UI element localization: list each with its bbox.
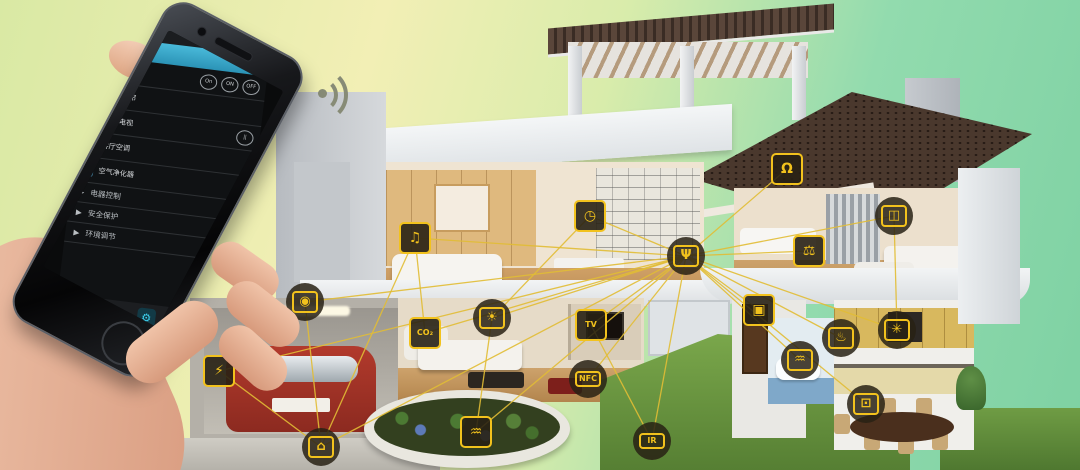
gas-stove-icon-glyph: ♨ xyxy=(828,327,854,349)
row-buttons: OnONOFF xyxy=(199,73,261,96)
weight-scale-icon: ⚖ xyxy=(793,235,825,267)
energy-meter-icon-glyph: ◷ xyxy=(584,209,596,223)
alarm-bell-icon: Ω xyxy=(771,153,803,185)
light-bulb-icon: ☀ xyxy=(473,299,511,337)
device-label: 客厅电视 xyxy=(104,115,134,129)
section-label: 电器控制 xyxy=(90,187,122,202)
purifier-icon: ♒ xyxy=(78,161,94,177)
shower-sprinkler-icon: ♒ xyxy=(781,341,819,379)
light-bulb-icon-glyph: ☀ xyxy=(479,307,505,329)
shower-sprinkler-icon-glyph: ♒ xyxy=(787,349,813,371)
caret-right-icon: ▶ xyxy=(78,187,85,197)
device-button[interactable]: On xyxy=(199,73,218,90)
tv-icon: ▭ xyxy=(85,111,101,127)
section-label: 安全保护 xyxy=(87,208,119,223)
curtain-icon-glyph: ◫ xyxy=(881,205,907,227)
curtain-icon: ◫ xyxy=(88,85,104,101)
section-label: 环境调节 xyxy=(85,228,117,243)
phone-device-list: ☀客厅照明OnONOFF◫客厅窗帘▭客厅电视||❄客厅空调♒空气净化器 xyxy=(72,54,268,203)
sprinkler-icon: ♒ xyxy=(460,416,492,448)
oven-icon: ⊡ xyxy=(847,385,885,423)
caret-right-icon: ▶ xyxy=(75,207,82,217)
row-buttons: || xyxy=(235,129,254,146)
device-button[interactable]: ON xyxy=(220,76,239,93)
ventilation-fan-icon-glyph: ✳ xyxy=(884,319,910,341)
motion-sensor-icon-glyph: IR xyxy=(639,433,665,449)
alarm-bell-icon-glyph: Ω xyxy=(781,162,793,176)
oven-icon-glyph: ⊡ xyxy=(853,393,879,415)
hand-with-phone: ‹ 任务 ▼ 照明管理 ☀客厅照明OnONOFF◫客厅窗帘▭客厅电视||❄客厅空… xyxy=(0,0,420,470)
bulb-icon: ☀ xyxy=(91,60,107,76)
ac-icon: ❄ xyxy=(81,136,97,152)
gas-stove-icon: ♨ xyxy=(822,319,860,357)
device-button[interactable]: || xyxy=(235,129,254,146)
front-camera xyxy=(195,25,209,39)
group-label: 照明管理 xyxy=(106,41,140,56)
ventilation-fan-icon: ✳ xyxy=(878,311,916,349)
window-sensor-icon: ▣ xyxy=(743,294,775,326)
smartphone: ‹ 任务 ▼ 照明管理 ☀客厅照明OnONOFF◫客厅窗帘▭客厅电视||❄客厅空… xyxy=(0,0,362,440)
tv-icon-glyph: TV xyxy=(585,321,597,329)
tv-icon: TV xyxy=(575,309,607,341)
motion-sensor-icon: IR xyxy=(633,422,671,460)
app-title: 任务 xyxy=(126,30,144,37)
caret-down-icon: ▼ xyxy=(96,41,103,51)
device-button[interactable]: OFF xyxy=(242,78,261,95)
caret-right-icon: ▶ xyxy=(73,227,80,237)
smart-home-scene: ◉⚡⌂CO₂☀♒TVNFCIR♫◷ΨΩ◫⚖▣♨♒✳⊡ ‹ 任务 ▼ 照明管理 xyxy=(0,0,1080,470)
device-label: 空气净化器 xyxy=(98,166,135,180)
nfc-icon: NFC xyxy=(569,360,607,398)
device-label: 客厅照明 xyxy=(110,65,140,79)
weight-scale-icon-glyph: ⚖ xyxy=(803,244,816,258)
router-hub-icon-glyph: Ψ xyxy=(673,245,699,267)
sprinkler-icon-glyph: ♒ xyxy=(470,425,483,439)
tab-scenes[interactable]: ▦ xyxy=(64,298,84,318)
nfc-icon-glyph: NFC xyxy=(575,371,601,387)
energy-meter-icon: ◷ xyxy=(574,200,606,232)
curtain-icon: ◫ xyxy=(875,197,913,235)
device-label: 客厅窗帘 xyxy=(107,90,137,104)
back-button[interactable]: ‹ xyxy=(96,30,101,32)
window-sensor-icon-glyph: ▣ xyxy=(752,303,765,317)
router-hub-icon: Ψ xyxy=(667,237,705,275)
tab-devices[interactable]: ▧ xyxy=(100,303,120,323)
device-label: 客厅空调 xyxy=(101,140,131,154)
